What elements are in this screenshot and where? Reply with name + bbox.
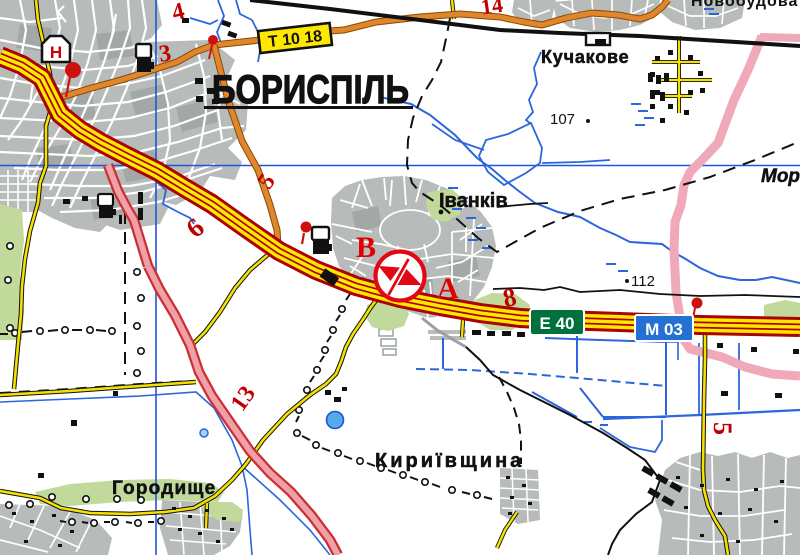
svg-text:БОРИСПІЛЬ: БОРИСПІЛЬ: [212, 68, 409, 112]
svg-text:5: 5: [708, 422, 737, 435]
svg-text:Н: Н: [50, 43, 62, 62]
svg-text:Кучакове: Кучакове: [541, 47, 629, 67]
svg-text:107: 107: [550, 111, 575, 128]
svg-text:М 03: М 03: [645, 320, 683, 339]
svg-text:Новобудова: Новобудова: [691, 0, 798, 10]
svg-text:А: А: [437, 272, 459, 305]
svg-text:Городище: Городище: [112, 478, 216, 499]
svg-text:14: 14: [479, 0, 504, 19]
svg-text:Е 40: Е 40: [540, 314, 575, 333]
svg-text:В: В: [356, 231, 376, 264]
svg-text:Іванків: Іванків: [439, 190, 508, 212]
svg-text:112: 112: [631, 273, 655, 290]
svg-text:Мор: Мор: [761, 166, 800, 187]
svg-text:Кириївщина: Кириївщина: [375, 450, 524, 472]
